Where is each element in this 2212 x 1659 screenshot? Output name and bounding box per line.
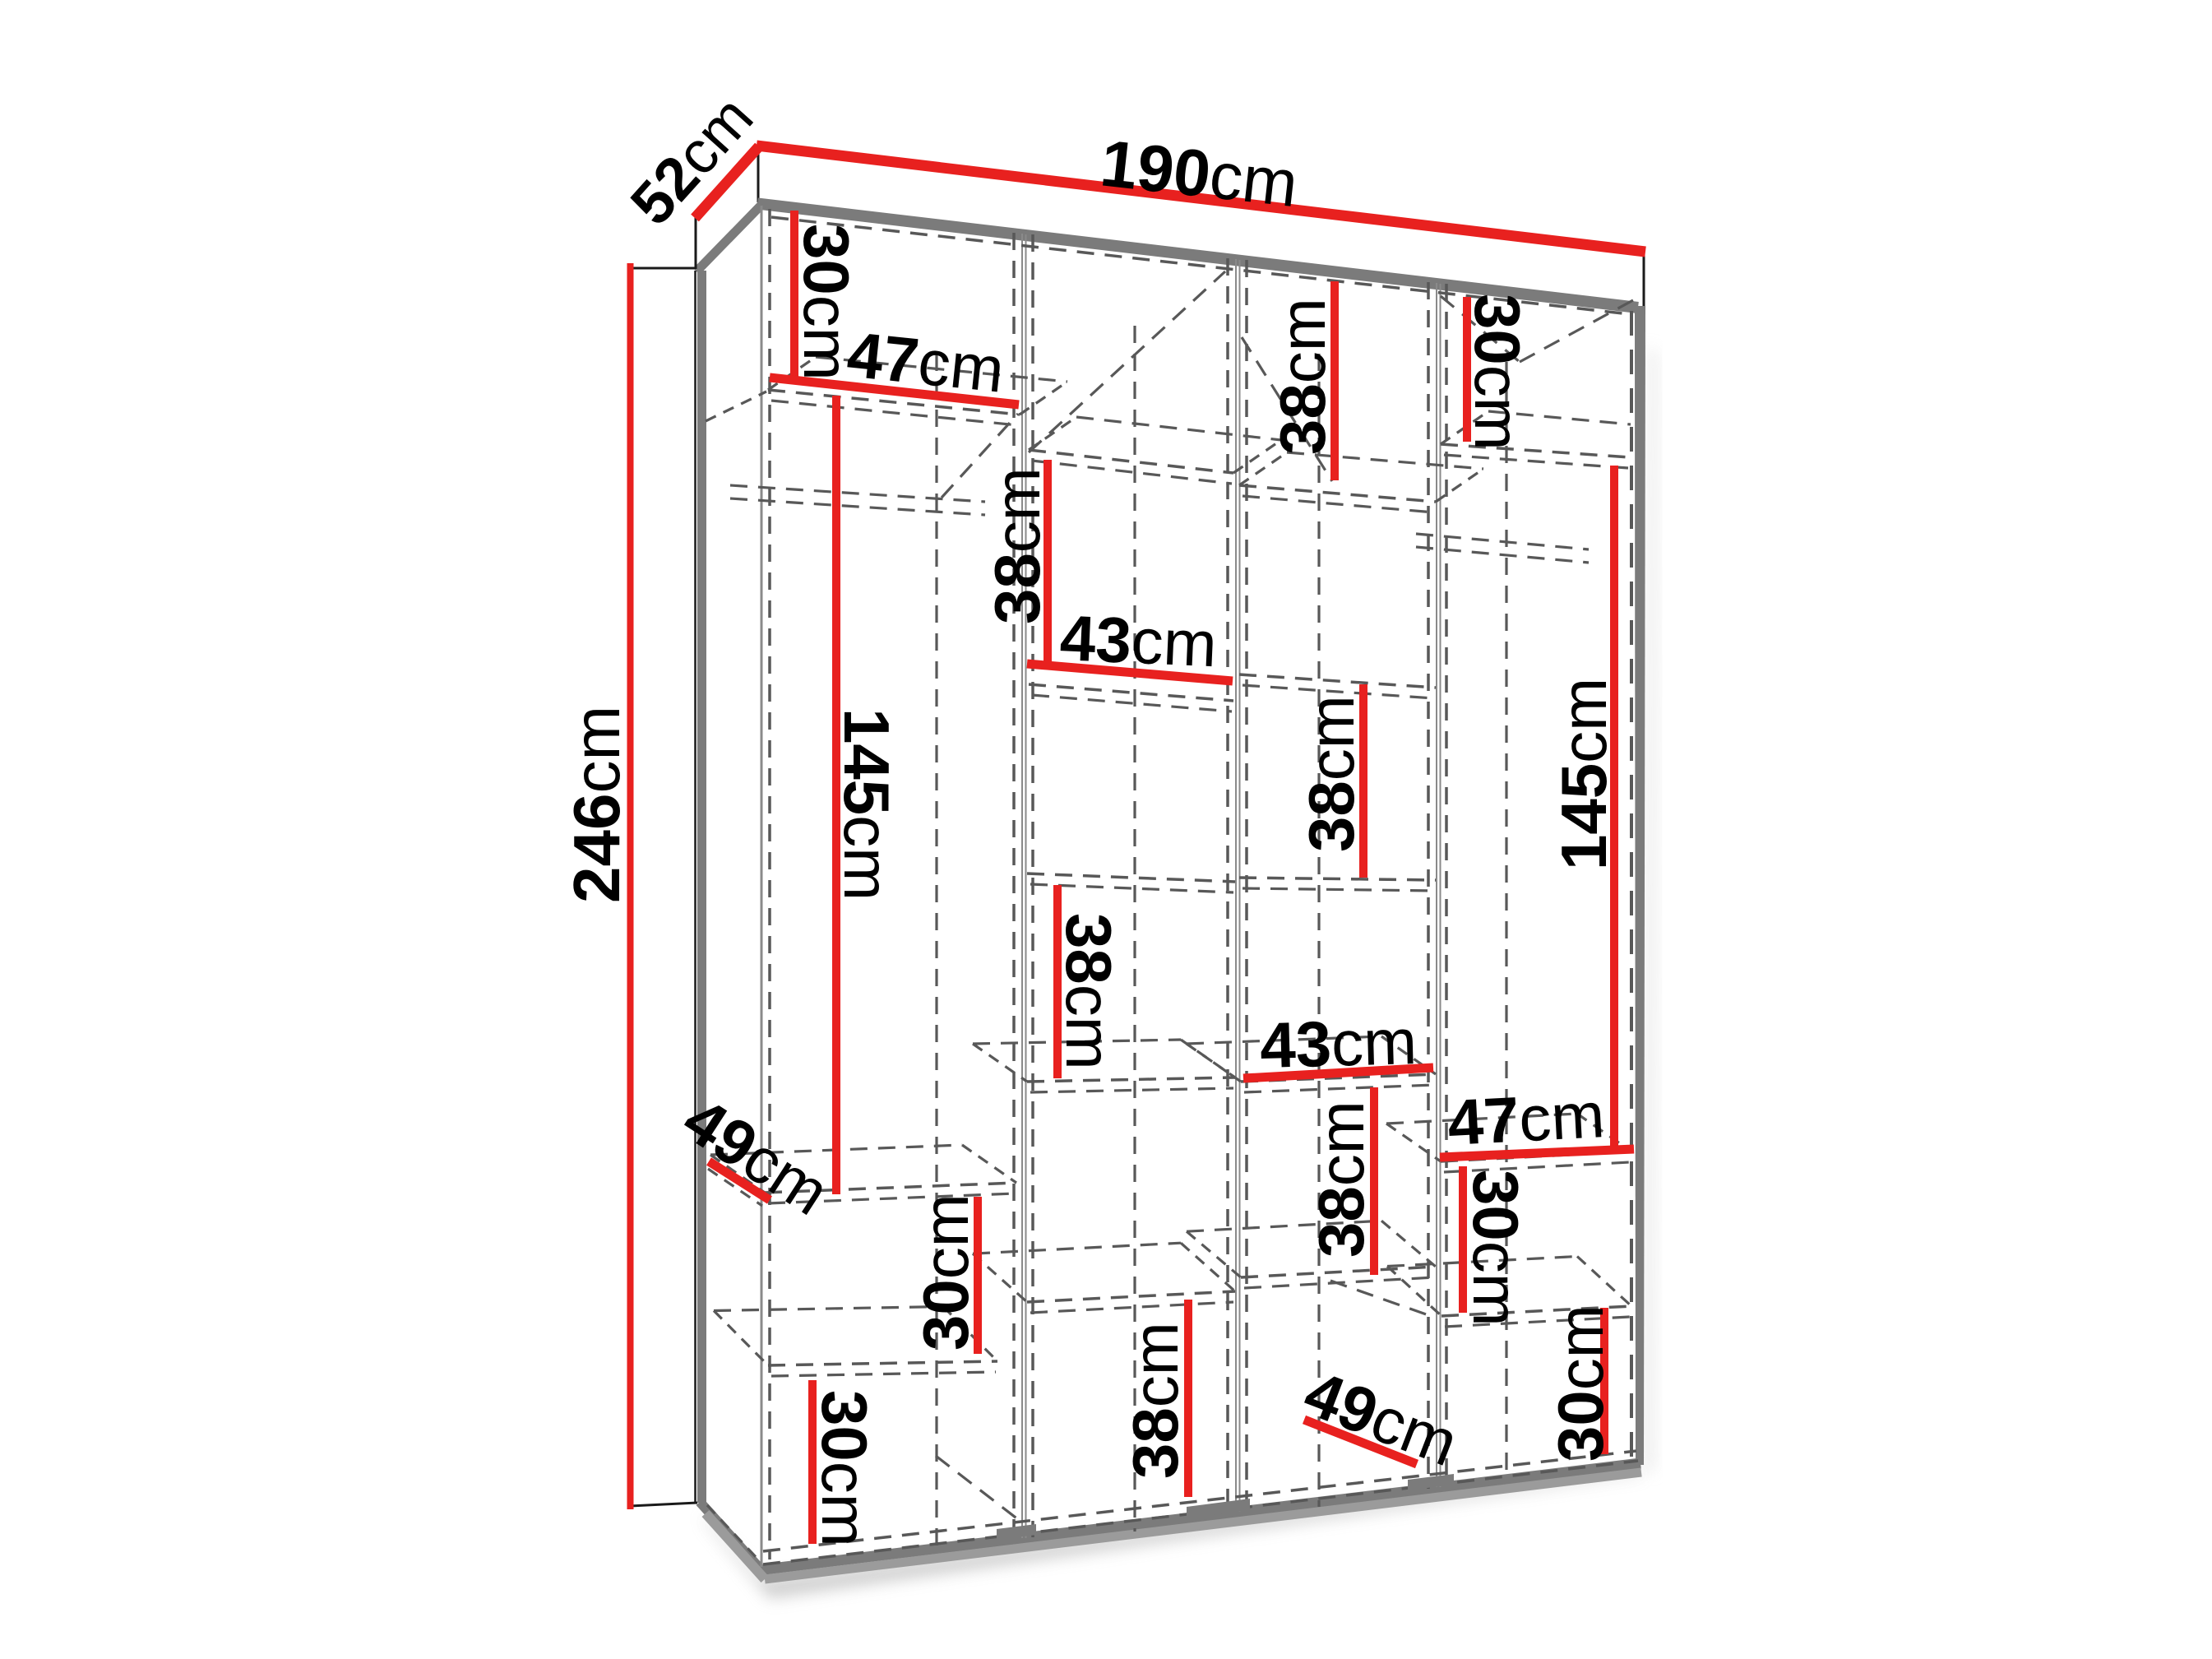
svg-text:38cm: 38cm (1053, 913, 1125, 1070)
svg-text:30cm: 30cm (1461, 294, 1534, 451)
svg-text:38cm: 38cm (1266, 298, 1339, 455)
svg-text:145cm: 145cm (831, 708, 903, 901)
svg-text:43cm: 43cm (1259, 1005, 1418, 1082)
svg-text:145cm: 145cm (1548, 678, 1620, 870)
svg-text:38cm: 38cm (1305, 1101, 1377, 1258)
svg-text:38cm: 38cm (1119, 1322, 1192, 1479)
svg-text:30cm: 30cm (1460, 1170, 1532, 1327)
svg-text:47cm: 47cm (1446, 1078, 1606, 1159)
svg-text:38cm: 38cm (981, 467, 1053, 624)
svg-text:38cm: 38cm (1295, 695, 1367, 852)
svg-text:30cm: 30cm (1544, 1304, 1617, 1462)
svg-text:43cm: 43cm (1058, 601, 1218, 680)
svg-text:30cm: 30cm (808, 1390, 881, 1547)
svg-text:246cm: 246cm (560, 706, 633, 903)
svg-text:30cm: 30cm (909, 1193, 982, 1351)
